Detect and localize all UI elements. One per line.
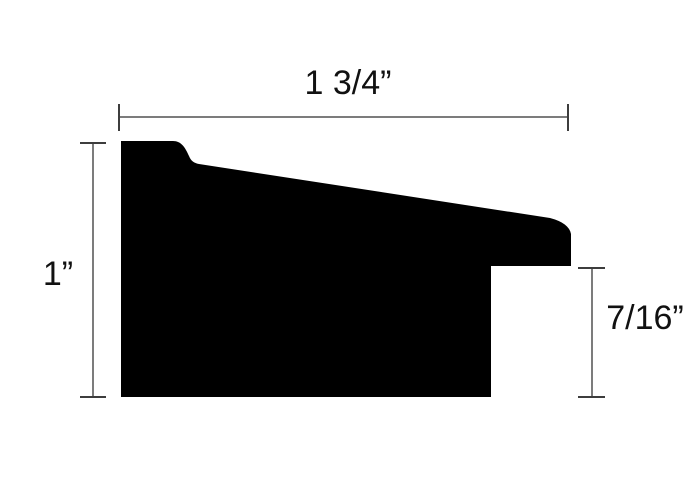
diagram-canvas: 1 3/4” 1” 7/16”	[0, 0, 700, 500]
height-dimension-label: 1”	[13, 257, 103, 291]
width-dimension-label: 1 3/4”	[238, 66, 458, 100]
moulding-profile-shape	[121, 141, 571, 397]
rabbet-dimension-label: 7/16”	[585, 301, 700, 335]
